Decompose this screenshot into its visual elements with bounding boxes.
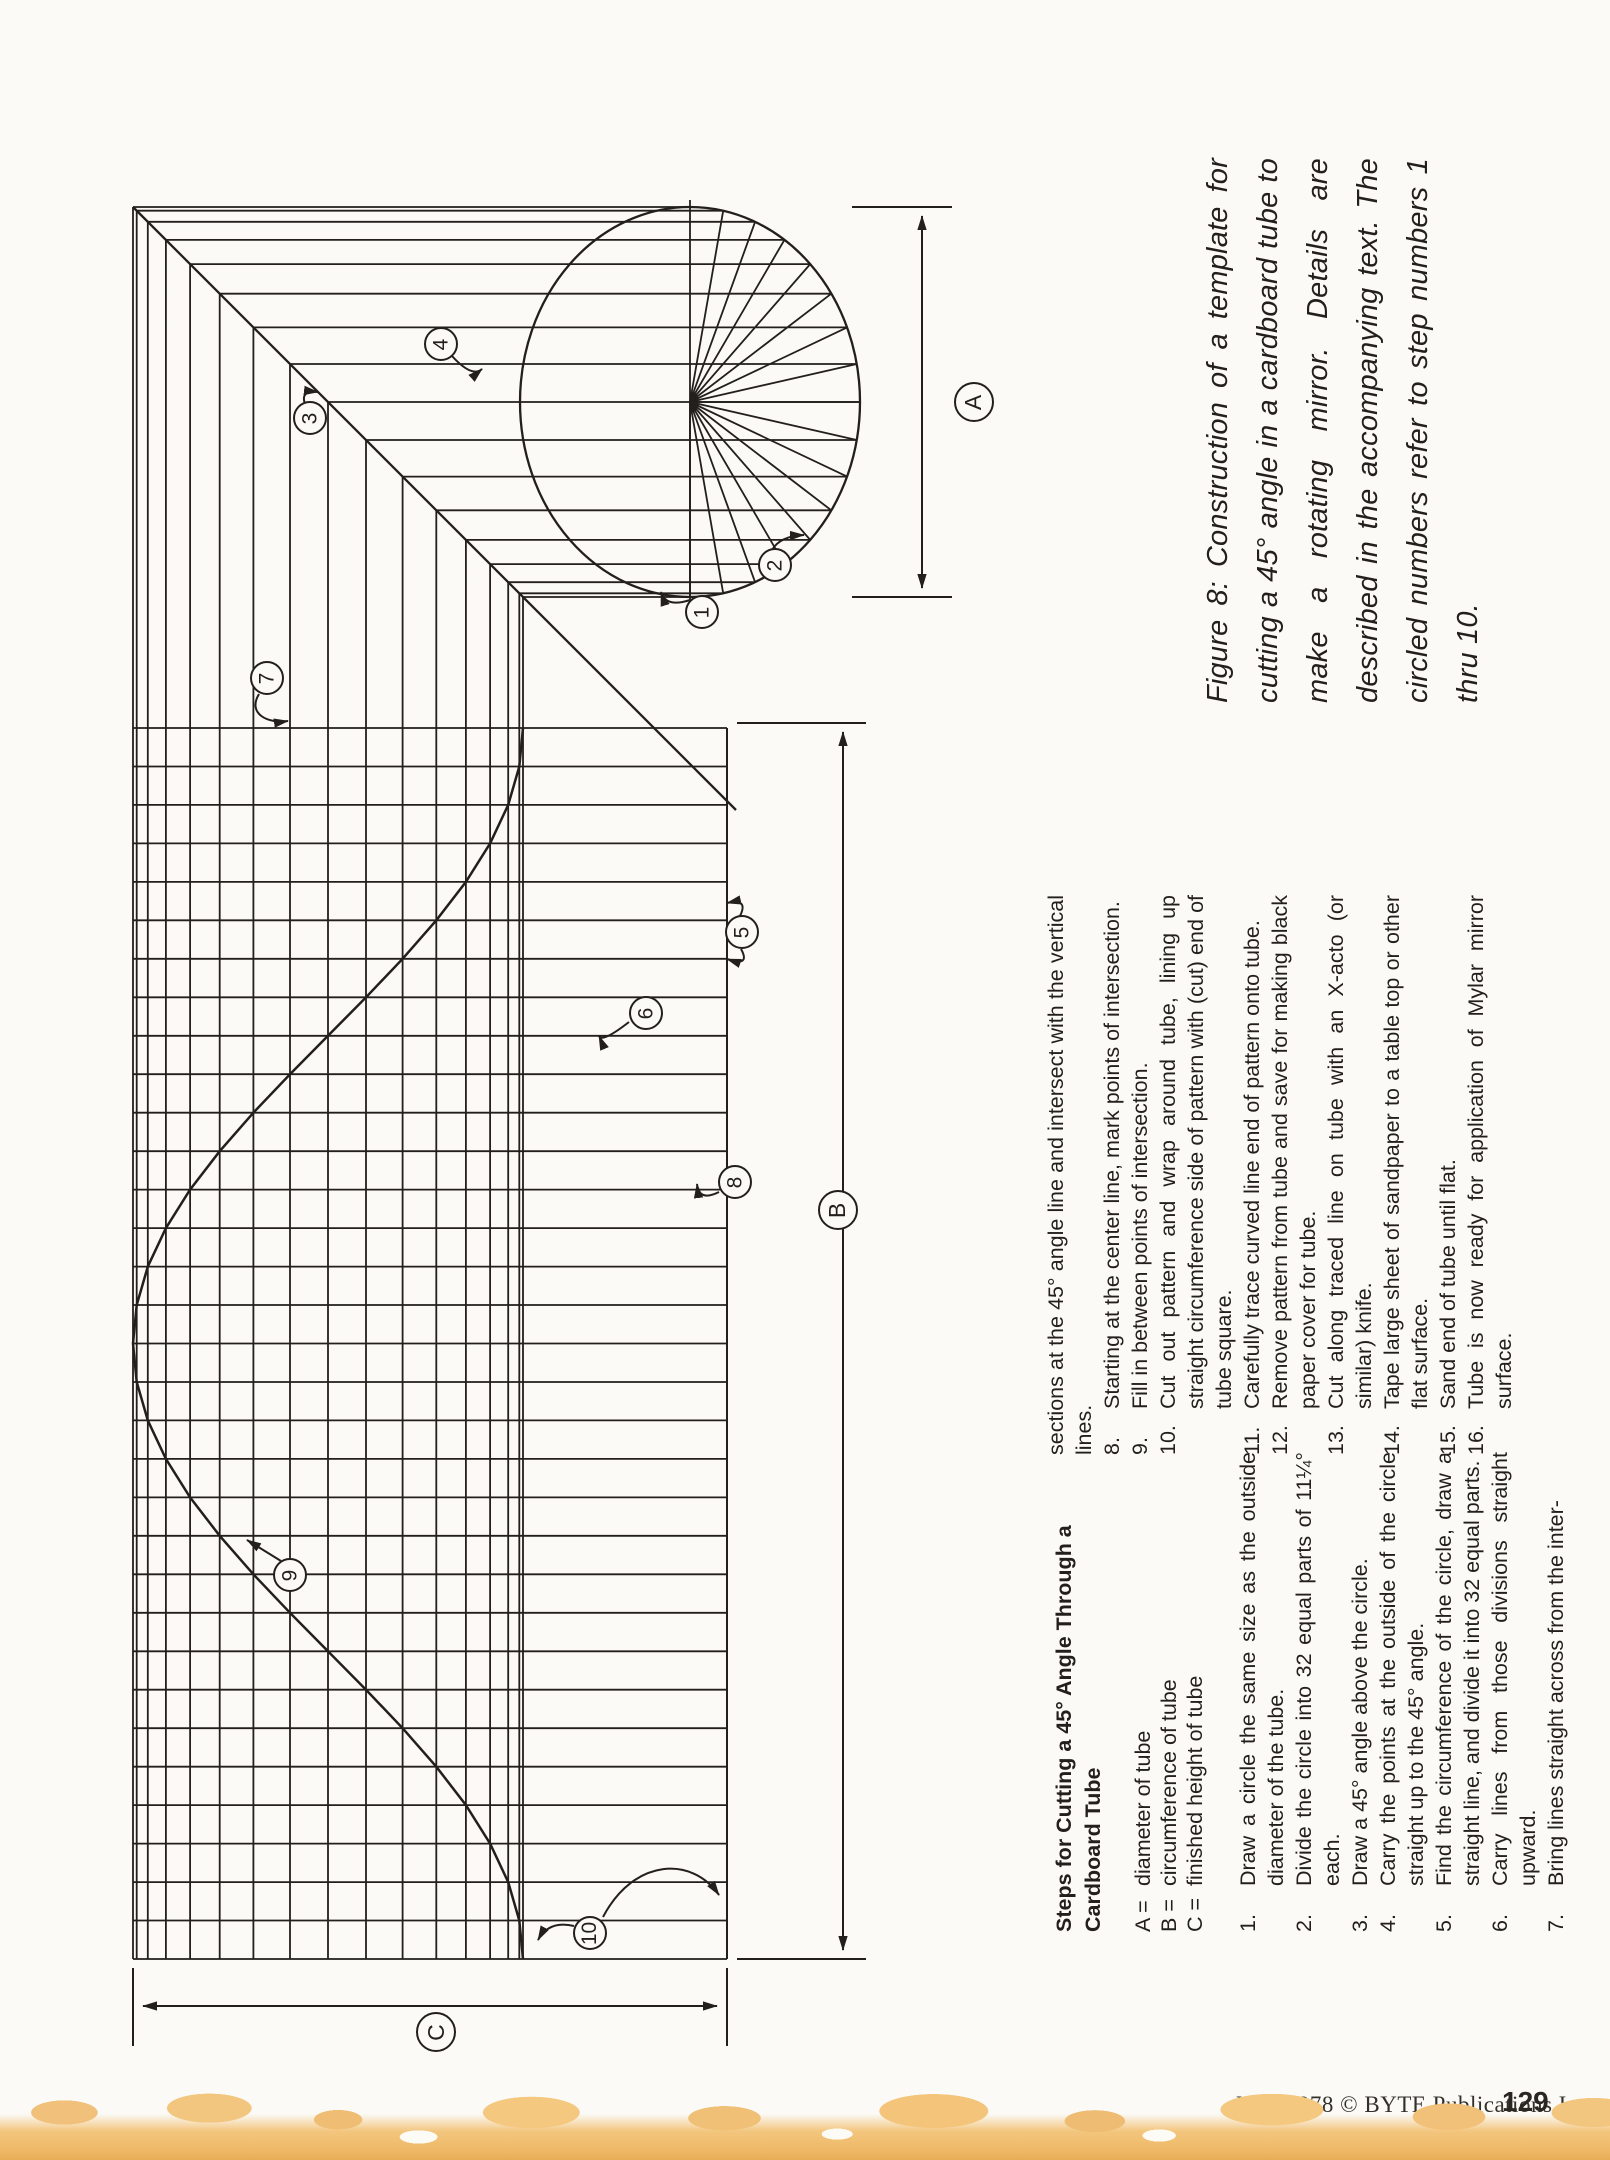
callout-5: 5 — [725, 915, 759, 949]
legend: A =diameter of tube B =circumference of … — [1130, 1452, 1208, 1932]
step-item: 15.Sand end of tube until flat. — [1434, 895, 1462, 1455]
magazine-page: 1 2 3 4 5 6 7 8 9 10 A B C Figure 8: Con… — [0, 0, 1610, 2160]
figure-caption: Figure 8: Construction of a template for… — [1193, 158, 1503, 703]
callout-2: 2 — [758, 548, 792, 582]
callout-4: 4 — [424, 327, 458, 361]
step-item: 1.Draw a circle the same size as the out… — [1234, 1452, 1290, 1932]
dimension-label-b: B — [818, 1190, 858, 1230]
callout-7: 7 — [250, 661, 284, 695]
callout-6: 6 — [629, 996, 663, 1030]
step-item: 4.Carry the points at the outside of the… — [1374, 1452, 1430, 1932]
step-item: 12.Remove pattern from tube and save for… — [1266, 895, 1322, 1455]
step-item: 3.Draw a 45° angle above the circle. — [1346, 1452, 1374, 1932]
steps-heading-line1: Steps for Cutting a 45° Angle Through a — [1050, 1452, 1079, 1932]
steps-heading-line2: Cardboard Tube — [1079, 1452, 1108, 1932]
step7-runover: sections at the 45° angle line and inter… — [1042, 895, 1098, 1455]
step-item: 7.Bring lines straight across from the i… — [1542, 1452, 1570, 1932]
callout-9: 9 — [273, 1558, 307, 1592]
callout-3: 3 — [293, 401, 327, 435]
instructions-column-left: Steps for Cutting a 45° Angle Through a … — [1050, 1452, 1580, 1932]
dimension-label-c: C — [416, 2012, 456, 2052]
dimension-label-a: A — [954, 382, 994, 422]
step-item: 13.Cut along traced line on tube with an… — [1322, 895, 1378, 1455]
step-item: 9.Fill in between points of intersection… — [1126, 895, 1154, 1455]
instructions-column-right: sections at the 45° angle line and inter… — [1042, 895, 1587, 1455]
callout-10: 10 — [573, 1916, 607, 1950]
step-item: 10.Cut out pattern and wrap around tube,… — [1154, 895, 1238, 1455]
callout-1: 1 — [685, 595, 719, 629]
step-item: 5.Find the circumference of the circle, … — [1430, 1452, 1486, 1932]
scan-artifact-band — [0, 2088, 1610, 2160]
step-item: 2.Divide the circle into 32 equal parts … — [1290, 1452, 1346, 1932]
callout-8: 8 — [718, 1165, 752, 1199]
steps-list-8-16: 8.Starting at the center line, mark poin… — [1098, 895, 1518, 1455]
step-item: 8.Starting at the center line, mark poin… — [1098, 895, 1126, 1455]
step-item: 16.Tube is now ready for application of … — [1462, 895, 1518, 1455]
legend-row: A =diameter of tube — [1130, 1452, 1156, 1932]
legend-row: C =finished height of tube — [1182, 1452, 1208, 1932]
steps-list-1-7: 1.Draw a circle the same size as the out… — [1234, 1452, 1570, 1932]
legend-row: B =circumference of tube — [1156, 1452, 1182, 1932]
step-item: 11.Carefully trace curved line end of pa… — [1238, 895, 1266, 1455]
step-item: 14.Tape large sheet of sandpaper to a ta… — [1378, 895, 1434, 1455]
step-item: 6.Carry lines from those divisions strai… — [1486, 1452, 1542, 1932]
